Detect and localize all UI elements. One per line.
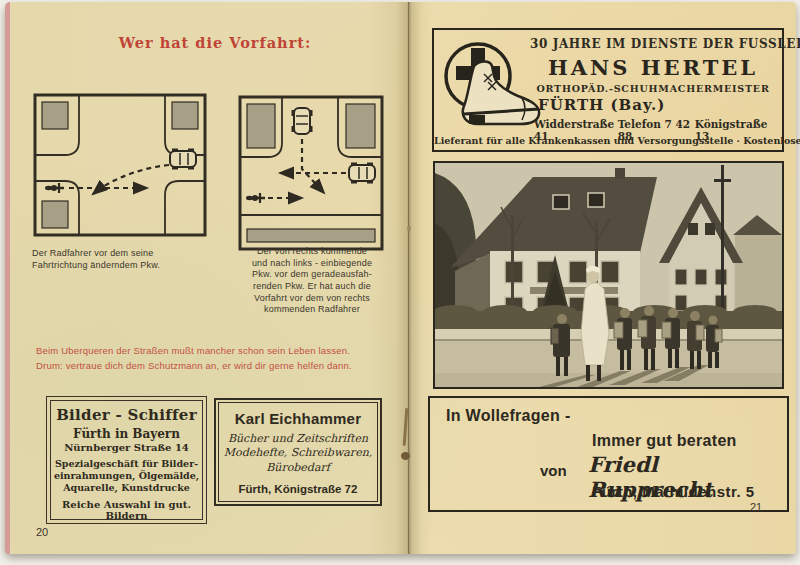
- page-title: Wer hat die Vorfahrt:: [70, 34, 360, 51]
- ad-tagline: 30 JAHRE IM DIENSTE DER FUSSLEIDENDEN: [434, 37, 782, 51]
- ad-title: Karl Eichhammer: [219, 410, 377, 427]
- caption-line: renden Pkw. Er hat auch die: [234, 281, 390, 293]
- ad-description: Spezialgeschäft für Bilder- einrahmungen…: [51, 458, 202, 494]
- car-turn-arrow: [93, 165, 169, 194]
- center-fold-line: [408, 2, 409, 554]
- safety-verse: Beim Uberqueren der Straßen mußt mancher…: [36, 344, 398, 373]
- intersection-diagram-right: [238, 95, 384, 251]
- ad-friedl-rupprecht: In Wollefragen - Immer gut beraten von F…: [428, 396, 789, 512]
- corner-block: [346, 104, 375, 148]
- binding-hole: [407, 226, 411, 231]
- ad-von-label: von: [540, 462, 567, 479]
- ad-karl-eichhammer: Karl Eichhammer Bücher und Zeitschriften…: [214, 398, 382, 506]
- ad-footer: Lieferant für alle Krankenkassen und Ver…: [434, 135, 782, 146]
- caption-line: und nach links - einbiegende: [234, 258, 390, 270]
- car-icon: [170, 149, 196, 170]
- corner-block: [42, 201, 68, 228]
- car-icon: [349, 163, 375, 184]
- cyclist-icon: [246, 193, 265, 203]
- cyclist-icon: [45, 183, 64, 193]
- ad-business-name: HANS HERTEL: [530, 55, 776, 80]
- ad-street: Nürnberger Straße 14: [51, 442, 202, 453]
- diagram-right-caption: Der von rechts kommende und nach links -…: [234, 246, 390, 316]
- corner-block: [247, 104, 275, 148]
- ad-line-2: Immer gut beraten: [592, 432, 737, 450]
- caption-line: Pkw. vor dem geradeausfah-: [234, 269, 390, 281]
- intersection-diagram-left: [33, 93, 207, 237]
- ad-city: Fürth in Bayern: [51, 427, 202, 441]
- ad-line-1: In Wollefragen -: [446, 407, 571, 425]
- caption-line: Vorfahrt vor dem von rechts: [234, 293, 390, 305]
- page-number-left: 20: [36, 526, 48, 538]
- curb-strip: [247, 229, 375, 242]
- verse-line: Beim Uberqueren der Straßen mußt mancher…: [36, 344, 398, 359]
- ad-address: Fürth, Mathildenstr. 5: [592, 483, 755, 500]
- center-fold: [396, 2, 422, 554]
- corner-block: [42, 102, 68, 129]
- ad-bilder-schiffer: Bilder - Schiffer Fürth in Bayern Nürnbe…: [46, 396, 207, 524]
- car-left-turn-arrow: [302, 139, 324, 193]
- caption-line: kommenden Radfahrer: [234, 304, 390, 316]
- page-edge-tint: [5, 2, 10, 554]
- ad-title: Bilder - Schiffer: [51, 406, 202, 424]
- page-number-right: 21: [750, 501, 762, 513]
- verse-line: Drum: vertraue dich dem Schutzmann an, e…: [36, 359, 398, 374]
- ad-description: Bücher und Zeitschriften Modehefte, Schr…: [219, 432, 377, 475]
- caption-line: Der von rechts kommende: [234, 246, 390, 258]
- caption-line: Fahrtrichtung änderndem Pkw.: [32, 260, 222, 272]
- ad-city: FÜRTH (Bay.): [538, 96, 665, 114]
- ad-footer: Reiche Auswahl in gut. Bildern: [51, 499, 202, 521]
- ad-hans-hertel: 30 JAHRE IM DIENSTE DER FUSSLEIDENDEN HA…: [432, 28, 784, 152]
- cross-and-boot-logo-icon: [438, 36, 544, 136]
- ad-address: Fürth, Königstraße 72: [219, 483, 377, 495]
- street-photo-illustration: [435, 163, 782, 387]
- binding-staple: [401, 452, 410, 460]
- ad-profession: ORTHOPÄD.-SCHUHMACHERMEISTER: [530, 83, 776, 94]
- car-icon: [292, 108, 313, 134]
- diagram-left-caption: Der Radfahrer vor dem seine Fahrtrichtun…: [32, 248, 222, 271]
- street-photo: [433, 161, 784, 389]
- caption-line: Der Radfahrer vor dem seine: [32, 248, 222, 260]
- corner-block: [172, 102, 198, 129]
